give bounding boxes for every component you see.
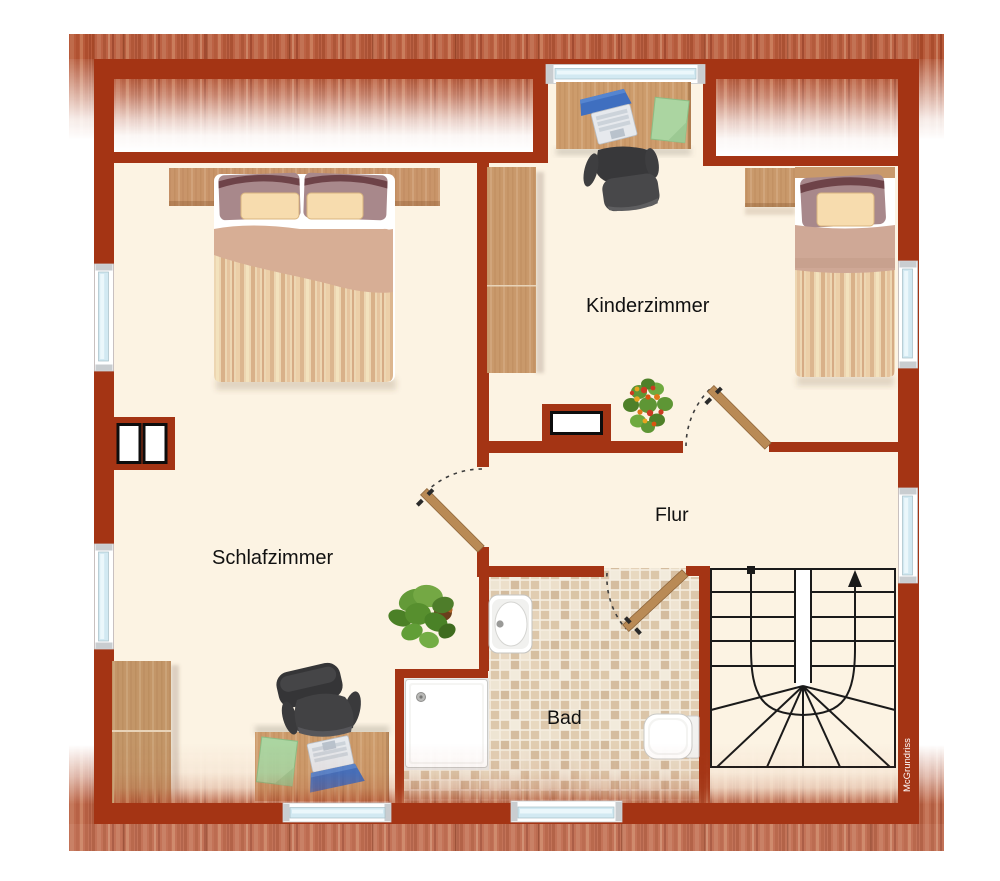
svg-text:Bad: Bad [547,707,582,729]
svg-text:Schlafzimmer: Schlafzimmer [212,547,333,569]
svg-text:Kinderzimmer: Kinderzimmer [586,295,710,317]
svg-text:McGrundriss: McGrundriss [902,738,913,792]
svg-text:Flur: Flur [655,504,689,526]
